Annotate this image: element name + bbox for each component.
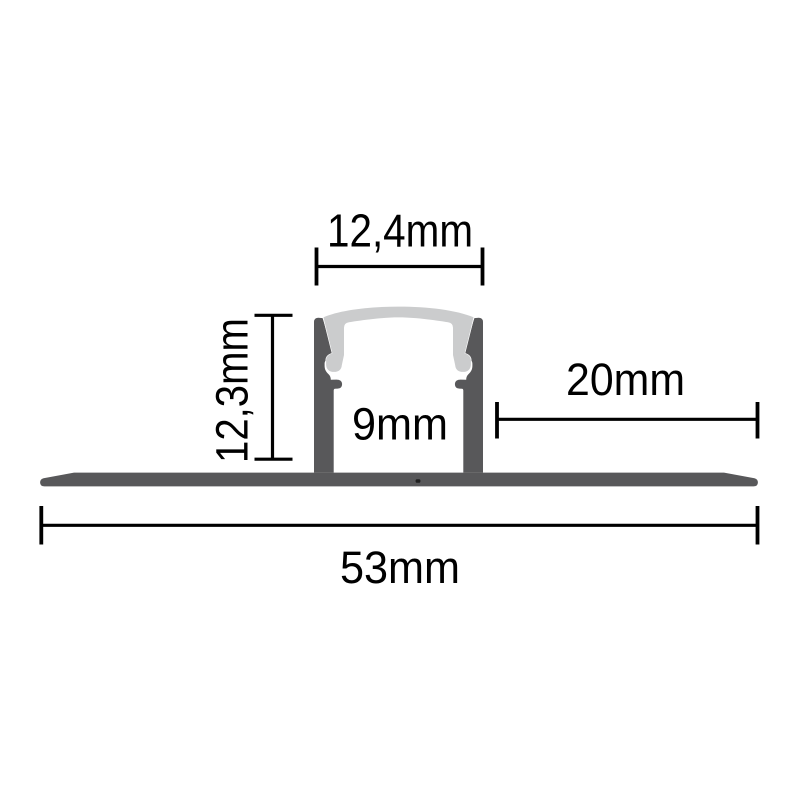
svg-text:9mm: 9mm <box>352 399 448 450</box>
svg-text:53mm: 53mm <box>340 542 460 593</box>
svg-text:12,4mm: 12,4mm <box>327 204 473 256</box>
svg-text:20mm: 20mm <box>566 354 685 405</box>
svg-text:12,3mm: 12,3mm <box>207 318 258 463</box>
